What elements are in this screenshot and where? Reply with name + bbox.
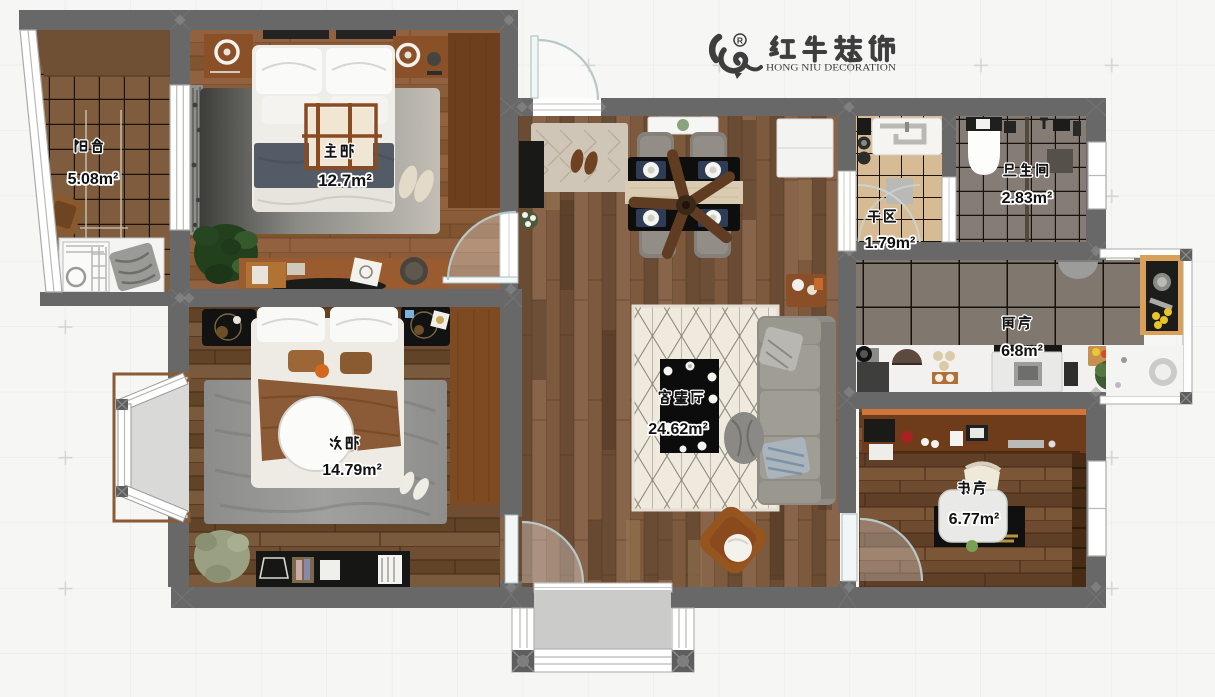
svg-text:HONG NIU DECORATION: HONG NIU DECORATION: [766, 63, 897, 73]
svg-text:R: R: [737, 36, 743, 46]
svg-text:14.79m²: 14.79m²: [322, 462, 382, 479]
svg-text:6.8m²: 6.8m²: [1001, 343, 1043, 360]
svg-text:6.77m²: 6.77m²: [949, 511, 1000, 528]
svg-text:1.79m²: 1.79m²: [865, 235, 916, 252]
svg-text:24.62m²: 24.62m²: [648, 421, 708, 438]
svg-text:5.08m²: 5.08m²: [68, 171, 119, 188]
svg-text:2.83m²: 2.83m²: [1002, 190, 1053, 207]
svg-text:12.7m²: 12.7m²: [318, 171, 372, 190]
